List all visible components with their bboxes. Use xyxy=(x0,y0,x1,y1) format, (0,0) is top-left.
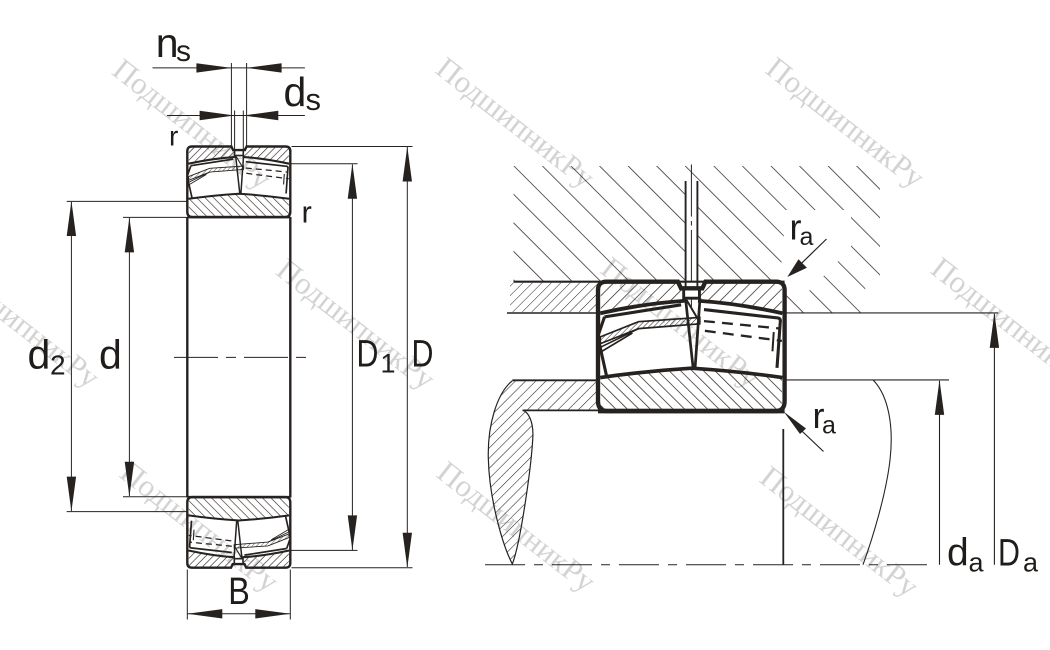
svg-text:1: 1 xyxy=(381,349,396,379)
svg-text:d: d xyxy=(99,332,122,378)
svg-text:d: d xyxy=(284,69,307,115)
svg-text:a: a xyxy=(822,412,836,440)
svg-text:r: r xyxy=(302,194,312,229)
svg-text:2: 2 xyxy=(50,350,66,381)
svg-text:s: s xyxy=(176,35,191,68)
svg-text:s: s xyxy=(306,82,322,117)
svg-text:d: d xyxy=(947,532,969,575)
svg-text:r: r xyxy=(169,121,178,152)
svg-text:B: B xyxy=(228,571,250,613)
svg-text:a: a xyxy=(1023,548,1039,578)
svg-text:d: d xyxy=(28,332,51,378)
svg-text:a: a xyxy=(800,223,814,251)
svg-text:D: D xyxy=(412,333,434,375)
svg-text:a: a xyxy=(969,548,985,578)
svg-text:D: D xyxy=(998,532,1020,574)
svg-text:D: D xyxy=(357,333,379,375)
